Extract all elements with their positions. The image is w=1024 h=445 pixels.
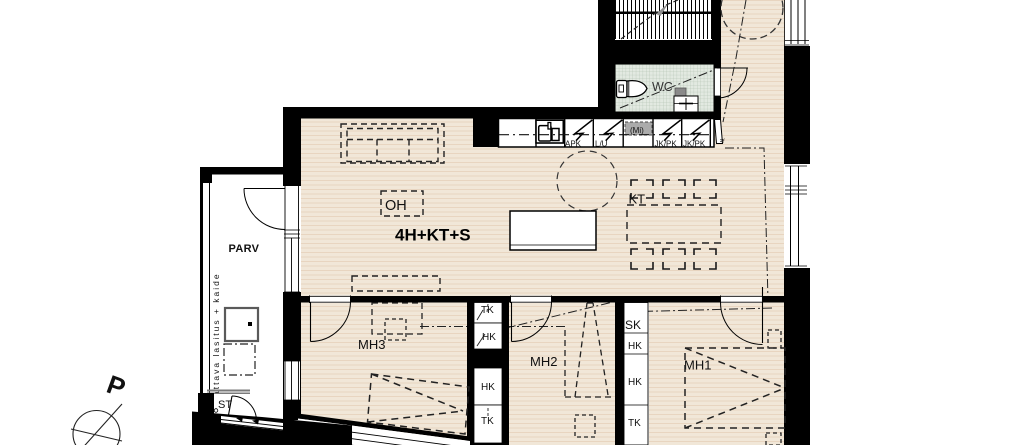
svg-text:OH: OH xyxy=(385,198,407,214)
svg-text:TK: TK xyxy=(481,305,494,316)
svg-text:MH2: MH2 xyxy=(530,354,557,369)
svg-text:avattava lasitus + kaide: avattava lasitus + kaide xyxy=(211,272,221,409)
svg-text:WC: WC xyxy=(652,80,673,94)
svg-text:TK: TK xyxy=(628,418,641,429)
svg-text:APK: APK xyxy=(565,139,582,148)
svg-text:HK: HK xyxy=(481,382,495,393)
svg-text:HK: HK xyxy=(628,377,642,388)
svg-text:4H+KT+S: 4H+KT+S xyxy=(395,226,471,245)
svg-text:(Mi): (Mi) xyxy=(630,126,644,135)
svg-text:PARV: PARV xyxy=(229,243,260,255)
svg-text:HK: HK xyxy=(628,341,642,352)
svg-text:L/U: L/U xyxy=(595,139,608,148)
svg-text:MH1: MH1 xyxy=(684,358,711,373)
svg-text:JK/PK: JK/PK xyxy=(655,139,678,148)
svg-text:TK: TK xyxy=(481,416,494,427)
svg-text:MH3: MH3 xyxy=(358,337,385,352)
svg-text:P: P xyxy=(103,369,130,403)
svg-text:SK: SK xyxy=(625,318,641,332)
svg-text:KT: KT xyxy=(629,192,646,207)
svg-text:JK/PK: JK/PK xyxy=(683,139,706,148)
svg-text:HK: HK xyxy=(482,332,496,343)
